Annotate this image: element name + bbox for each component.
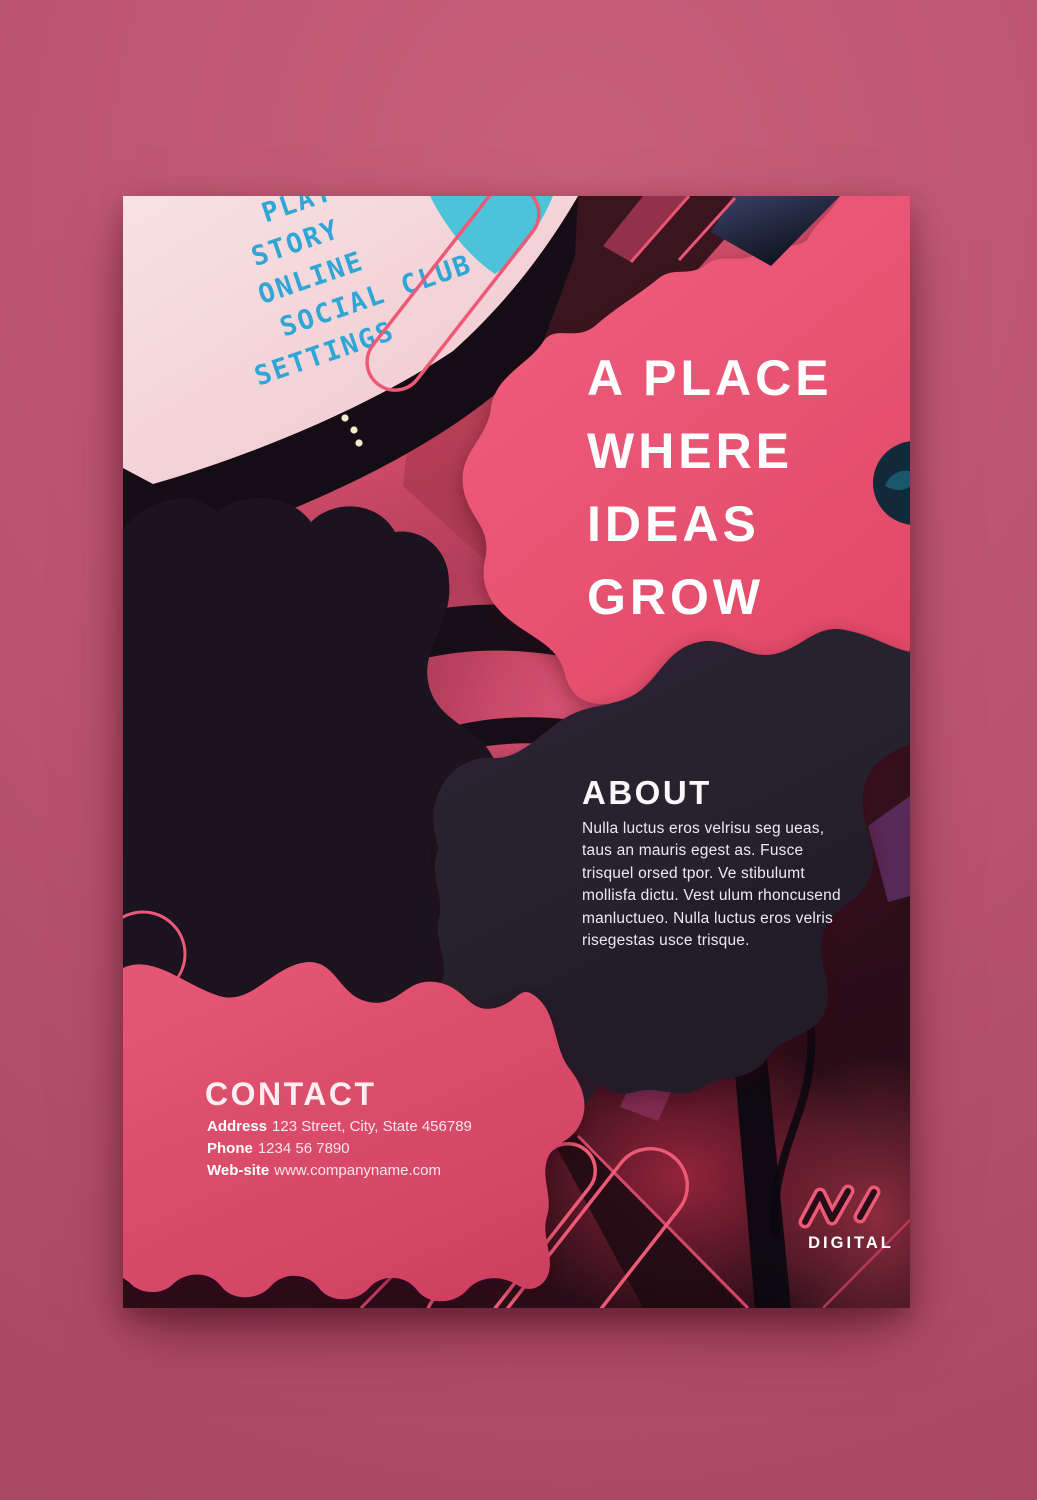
about-body: Nulla luctus eros velrisu seg ueas, taus… (582, 818, 841, 952)
contact-label: Web-site (207, 1162, 269, 1179)
flyer-poster: PLAY STORY ONLINE SOCIAL CLUB SETTINGS (123, 196, 910, 1308)
about-body-line: manluctueo. Nulla luctus eros velris (582, 908, 841, 930)
headline-line: GROW (587, 561, 907, 634)
contact-value: www.companyname.com (274, 1162, 441, 1179)
contact-value: 1234 56 7890 (258, 1140, 350, 1157)
contact-row-phone: Phone1234 56 7890 (207, 1138, 472, 1160)
contact-row-website: Web-sitewww.companyname.com (207, 1160, 472, 1182)
headline-line: IDEAS (587, 488, 907, 561)
headline-line: WHERE (587, 415, 907, 488)
about-body-line: Nulla luctus eros velrisu seg ueas, (582, 818, 841, 840)
contact-value: 123 Street, City, State 456789 (272, 1118, 472, 1135)
headline: A PLACE WHERE IDEAS GROW (587, 342, 907, 634)
about-body-line: taus an mauris egest as. Fusce (582, 840, 841, 862)
headline-line: A PLACE (587, 342, 907, 415)
digital-logo-text: DIGITAL (783, 1234, 910, 1253)
contact-label: Address (207, 1118, 267, 1135)
contact-title: CONTACT (205, 1076, 377, 1113)
backdrop: { "poster": { "headline": { "lines": ["A… (0, 0, 1037, 1500)
about-body-line: trisquel orsed tpor. Ve stibulumt (582, 863, 841, 885)
about-body-line: risegestas usce trisque. (582, 930, 841, 952)
about-title: ABOUT (582, 774, 712, 812)
contact-row-address: Address123 Street, City, State 456789 (207, 1116, 472, 1138)
about-body-line: mollisfa dictu. Vest ulum rhoncusend (582, 885, 841, 907)
contact-label: Phone (207, 1140, 253, 1157)
contact-rows: Address123 Street, City, State 456789 Ph… (207, 1116, 472, 1183)
